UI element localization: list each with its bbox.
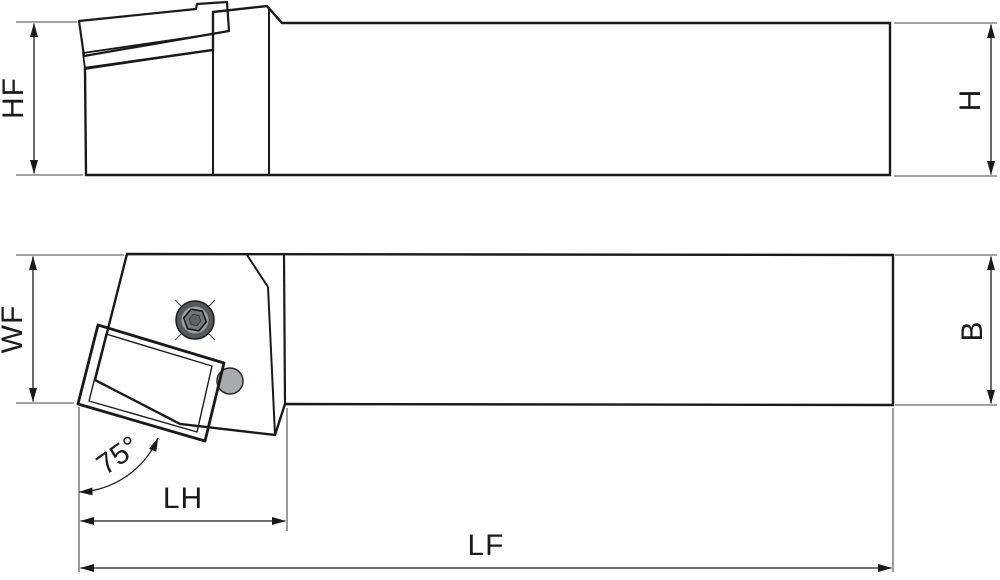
dim-label-hf: HF	[0, 77, 30, 119]
side-shim	[83, 34, 213, 69]
dim-label-h: H	[954, 89, 987, 112]
plan-insert-top-face	[89, 334, 212, 432]
dimension-b: B	[895, 255, 997, 405]
side-body	[85, 6, 890, 175]
dimension-hf: HF	[0, 22, 83, 175]
dimension-h: H	[894, 23, 997, 176]
side-view: HF H	[0, 2, 997, 176]
side-insert	[79, 2, 229, 56]
plan-body	[95, 254, 893, 435]
toolholder-technical-drawing: HF H	[0, 0, 1000, 580]
plan-view: WF B 75° LH LF	[0, 254, 997, 572]
plan-chamfer-edge	[247, 255, 268, 287]
plan-head-rear-edge	[268, 287, 275, 435]
drawing-canvas: HF H	[0, 0, 1000, 580]
dimension-wf: WF	[0, 255, 124, 403]
dim-label-wf: WF	[0, 305, 29, 354]
plan-shank-edge	[284, 255, 285, 404]
angle-label: 75°	[91, 430, 145, 481]
clamp-screw	[175, 300, 215, 340]
dim-label-b: B	[956, 320, 989, 341]
dim-label-lh: LH	[163, 482, 203, 515]
dimension-approach-angle: 75°	[79, 430, 158, 492]
dim-label-lf: LF	[467, 529, 504, 562]
